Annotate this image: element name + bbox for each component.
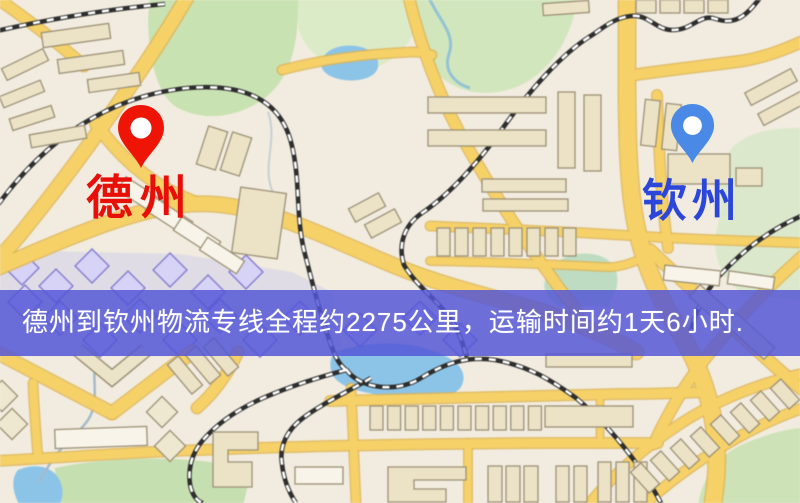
route-info-banner: 德州到钦州物流专线全程约2275公里，运输时间约1天6小时. [0,290,800,356]
logistics-route-map: 德州到钦州物流专线全程约2275公里，运输时间约1天6小时. 德州 钦州 [0,0,800,503]
origin-pin-icon [117,104,165,170]
destination-pin-icon [670,103,715,165]
origin-city-label: 德州 [86,176,194,223]
destination-city-label: 钦州 [642,179,742,224]
route-info-text: 德州到钦州物流专线全程约2275公里，运输时间约1天6小时. [22,302,744,339]
map-canvas [0,0,800,503]
